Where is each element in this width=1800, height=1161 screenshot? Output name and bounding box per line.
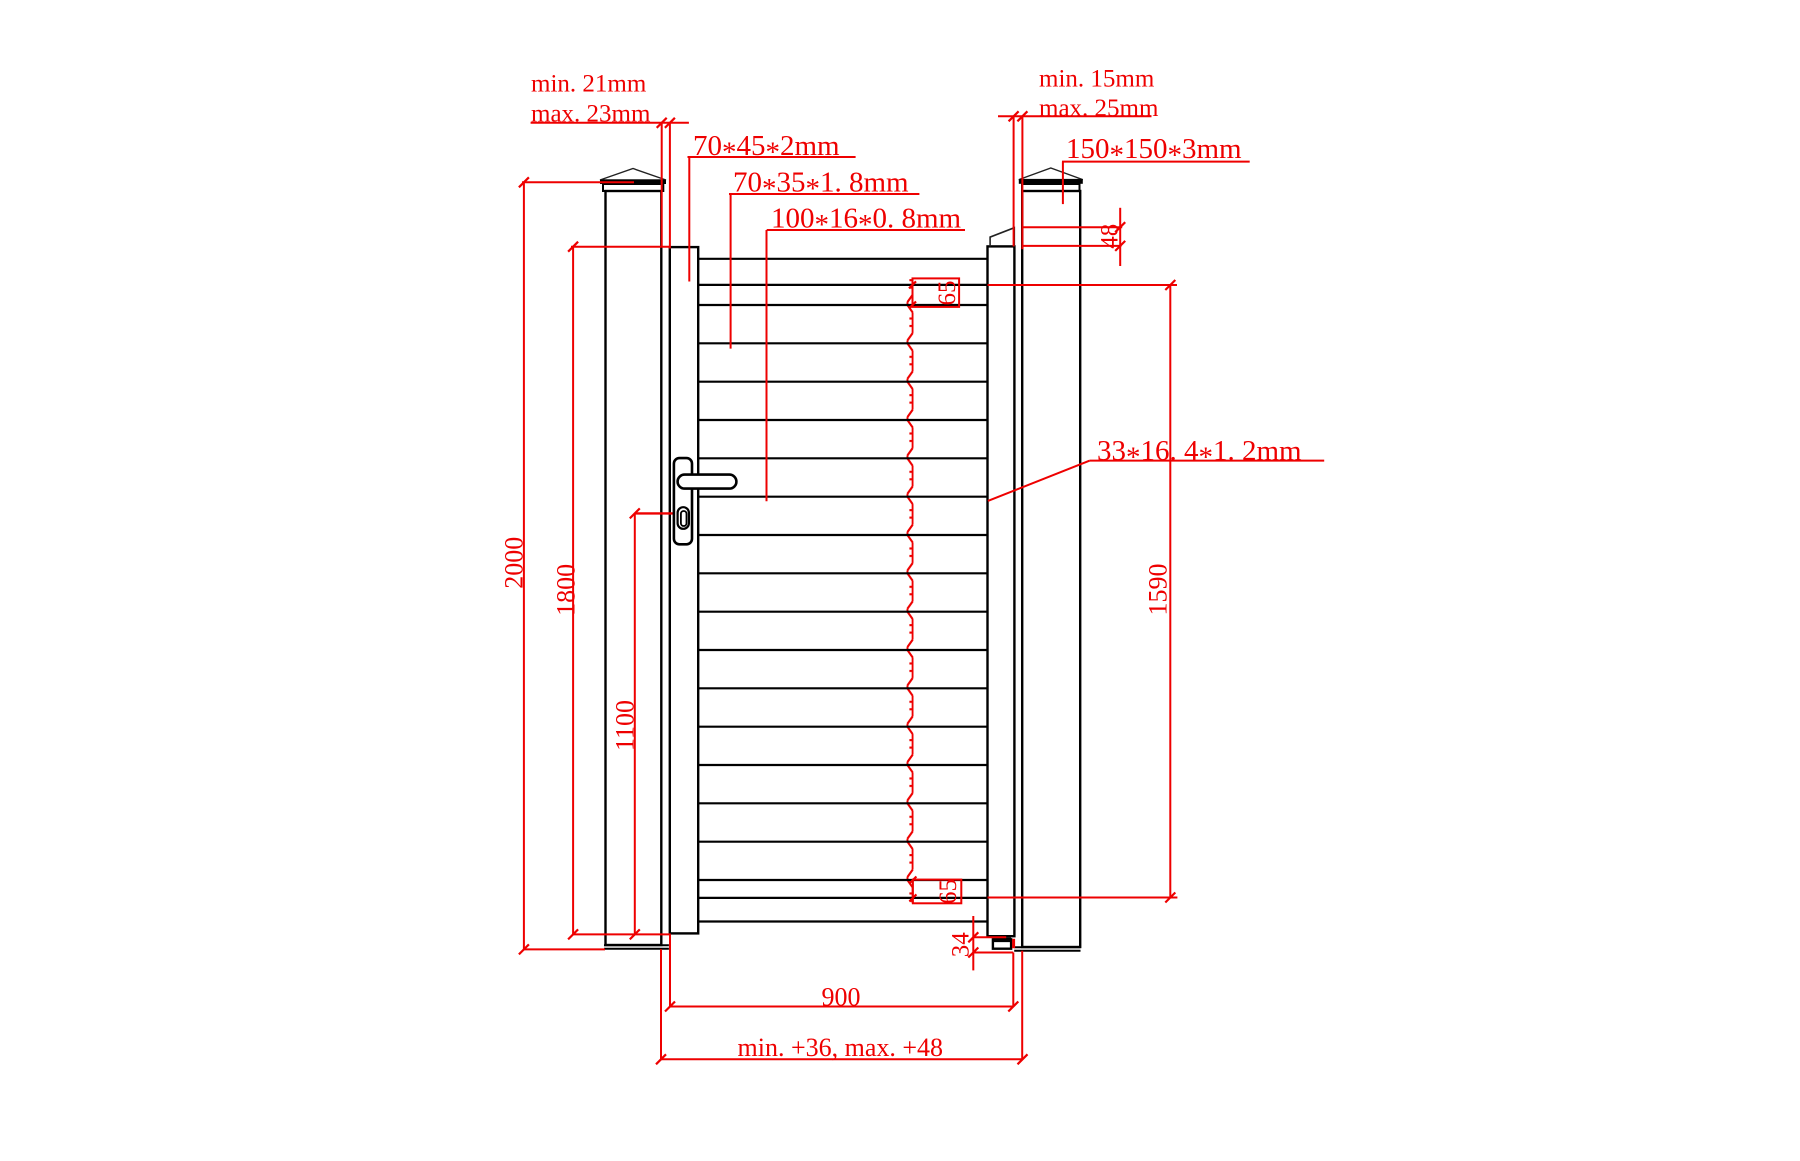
svg-text:65: 65 [934,281,961,306]
svg-text:max. 23mm: max. 23mm [531,101,651,128]
svg-text:1800: 1800 [552,564,581,616]
svg-text:34: 34 [948,932,975,958]
svg-text:1590: 1590 [1144,564,1173,616]
svg-text:min. 21mm: min. 21mm [531,71,647,98]
svg-text:min. 15mm: min. 15mm [1039,66,1155,93]
svg-text:48: 48 [1097,224,1124,249]
svg-text:min. +36, max. +48: min. +36, max. +48 [738,1033,944,1062]
svg-text:2000: 2000 [500,537,529,589]
svg-text:1100: 1100 [611,700,640,751]
svg-text:max. 25mm: max. 25mm [1039,95,1159,122]
svg-text:900: 900 [822,983,861,1012]
svg-text:65: 65 [935,879,962,904]
